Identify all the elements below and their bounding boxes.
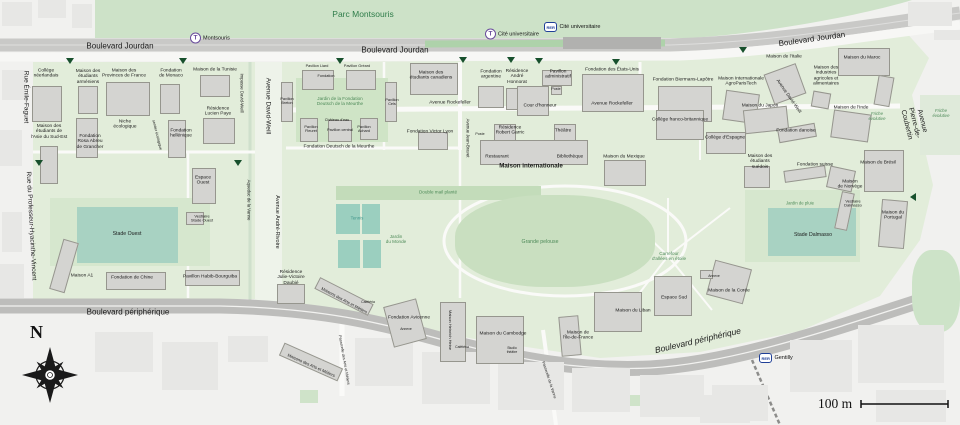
scale-bar: 100 m: [818, 396, 950, 412]
building: [830, 109, 872, 142]
station-label: Cité universitaire: [559, 24, 600, 30]
map-label: Maison des Industries agricoles et alime…: [813, 65, 839, 86]
city-block: [640, 375, 704, 417]
green-patch: [363, 240, 381, 268]
building: [656, 110, 704, 140]
building: [476, 316, 524, 364]
map-label: Espace Ouest: [195, 176, 211, 187]
map-label: Avenue André-Rivoire: [274, 195, 280, 248]
entrance-marker-icon: [234, 160, 242, 166]
city-block: [38, 0, 66, 18]
city-block: [0, 130, 22, 166]
entrance-marker-icon: [35, 160, 43, 166]
map-label: Avenue Jean-Bravet: [465, 119, 470, 158]
city-block: [0, 264, 24, 298]
map-label: Collège franco-britannique: [652, 117, 708, 122]
map-label: Fondation argentine: [480, 70, 501, 81]
map-label: Maison du Liban: [615, 308, 650, 313]
map-label: Collège d'Espagne: [705, 135, 745, 140]
map-label: Avenue David-Weill: [264, 78, 271, 134]
station-label: Cité universitaire: [498, 31, 539, 37]
green-patch: [912, 250, 960, 332]
building: [878, 199, 908, 249]
entrance-marker-icon: [612, 59, 620, 65]
green-patch: [362, 204, 380, 234]
map-label: Maison des étudiants canadiens: [410, 71, 453, 82]
map-label: Fondation Deutsch de la Meurthe: [304, 144, 375, 149]
compass-north-label: N: [30, 322, 43, 343]
city-block: [700, 395, 750, 423]
map-label: Annexe: [400, 328, 412, 332]
city-block: [498, 362, 564, 410]
building: [480, 140, 588, 165]
building: [864, 150, 904, 192]
entrance-marker-icon: [66, 58, 74, 64]
map-label: Stade Dalmasso: [794, 233, 832, 239]
map-label: Cafétéria: [455, 346, 469, 350]
map-label: Fondation hellénique: [170, 129, 192, 140]
map-label: Aqueduc de la Vanne: [246, 180, 251, 221]
city-block: [572, 368, 630, 412]
map-label: Poste: [551, 87, 560, 91]
entrance-marker-icon: [535, 58, 543, 64]
map-label: Boulevard périphérique: [87, 309, 170, 318]
map-label: Pavillon administratif: [545, 70, 571, 81]
scale-bar-line: [860, 398, 950, 410]
building: [106, 82, 150, 116]
map-label: Collège néerlandais: [34, 69, 59, 80]
map-label: Stade Ouest: [113, 232, 142, 238]
map-label: Fondation Biermans-Lapôtre: [653, 77, 714, 82]
tram-station: TCité universitaire: [485, 29, 539, 40]
building: [160, 84, 180, 114]
map-label: Maison de Norvège: [838, 180, 863, 191]
map-label: Maison du Maroc: [844, 55, 881, 60]
scale-label: 100 m: [818, 396, 852, 412]
city-block: [858, 325, 944, 383]
map-label: Maison Heinrich Heine: [448, 310, 452, 350]
building: [203, 118, 235, 144]
map-label: Friche évolutive: [869, 112, 886, 122]
map-label: Maison du Brésil: [860, 160, 895, 165]
compass-rose-icon: [22, 347, 78, 408]
tram-logo-icon: T: [190, 33, 201, 44]
city-block: [2, 2, 32, 26]
map-label: Avenue Rockefeller: [429, 100, 471, 105]
building: [346, 70, 376, 90]
building: [277, 284, 305, 304]
map-label: Bibliothèque: [557, 154, 583, 159]
building: [517, 86, 549, 116]
map-label: Fondation danoise: [776, 128, 815, 133]
building: [811, 91, 832, 110]
map-label: Boulevard Jourdan: [86, 43, 153, 52]
building: [78, 86, 98, 114]
map-label: Pavillon Achard: [357, 125, 370, 134]
map-label: Pavillon Habib-Bourguiba: [183, 274, 237, 279]
map-label: Fondation suisse: [797, 162, 833, 167]
map-label: Résidence Julie-Victoire Daubié: [277, 270, 304, 286]
map-label: Maison de l'Île-de-France: [563, 331, 594, 342]
map-label: Boulevard Jourdan: [361, 47, 428, 56]
entrance-marker-icon: [739, 47, 747, 53]
map-label: Jardin du Monde: [386, 234, 406, 244]
building: [478, 86, 504, 108]
map-label: Rue Émile-Faguet: [22, 71, 29, 123]
map-label: Maison des étudiants suédois: [748, 154, 773, 170]
entrance-marker-icon: [910, 193, 916, 201]
city-block: [162, 342, 218, 390]
map-label: Vestiaire Stade Ouest: [191, 215, 213, 224]
map-label: Restaurant: [485, 154, 508, 159]
map-label: Maison du Mexique: [603, 154, 645, 159]
rer-logo-icon: RER: [544, 22, 557, 32]
map-label: Résidence Robert Garric: [496, 126, 525, 137]
map-label: Cour d'honneur: [524, 103, 557, 108]
green-patch: [338, 240, 360, 268]
building: [32, 86, 62, 122]
rer-station: RERGentilly: [759, 353, 793, 363]
map-label: Maison de l'Italie: [766, 54, 802, 59]
map-label: Vestiaire Dalmasso: [844, 200, 862, 209]
map-label: Cafétéria: [361, 301, 375, 305]
map-label: Pavillon Breton: [280, 97, 293, 106]
map-label: Jardin de pluie: [786, 202, 814, 207]
station-label: Gentilly: [774, 355, 792, 361]
rer-station: RERCité universitaire: [544, 22, 600, 32]
map-label: Pavillon Cels: [385, 98, 398, 107]
map-label: Impasse David-Weill: [239, 73, 244, 112]
map-label: Résidence André Honnorat: [506, 69, 529, 85]
map-label: Maison du Portugal: [882, 211, 904, 222]
map-label: Fondation de Chine: [111, 275, 153, 280]
map-label: Maison du Cambodge: [480, 331, 527, 336]
rer-logo-icon: RER: [759, 353, 772, 363]
map-label: Friche évolutive: [933, 109, 950, 119]
city-block: [790, 340, 852, 392]
map-label: Parc Montsouris: [332, 10, 393, 20]
campus-map: Parc MontsourisBoulevard JourdanBoulevar…: [0, 0, 960, 425]
map-label: Pavillon Liard: [306, 64, 329, 68]
entrance-marker-icon: [179, 58, 187, 64]
tram-logo-icon: T: [485, 29, 496, 40]
map-label: Fondation de Monaco: [159, 69, 183, 80]
map-label: Fondation des États-Unis: [585, 67, 639, 72]
map-label: Grande pelouse: [522, 240, 559, 246]
map-label: Fondation: [318, 74, 335, 78]
city-block: [908, 2, 952, 26]
map-label: Carrefour d'allées en étoile: [652, 251, 686, 261]
tram-station: TMontsouris: [190, 33, 230, 44]
map-label: Poste: [475, 132, 484, 136]
city-block: [228, 336, 268, 362]
map-label: Fondation Avicenne: [388, 315, 430, 320]
map-label: Maison de la Tunisie: [193, 67, 237, 72]
map-label: Fondation Victor Lyon: [407, 129, 453, 134]
city-block: [2, 212, 22, 252]
building: [418, 132, 448, 150]
map-label: Studio théâtre: [507, 347, 518, 355]
station-label: Montsouris: [203, 35, 230, 41]
map-label: Pavillon Gréard: [344, 64, 370, 68]
city-block: [355, 338, 413, 386]
city-block: [72, 4, 92, 28]
entrance-marker-icon: [459, 57, 467, 63]
entrance-marker-icon: [336, 58, 344, 64]
map-label: Pavillon Fleuret: [304, 125, 317, 134]
map-label: Niche écologique: [113, 120, 136, 131]
building: [604, 160, 646, 186]
map-label: Maison Internationale AgroParisTech: [718, 77, 764, 88]
green-patch: [300, 390, 318, 403]
map-label: Résidence Lucien Paye: [205, 107, 231, 118]
map-label: Pavillon central: [327, 128, 353, 132]
map-label: Maison A1: [71, 273, 93, 278]
map-label: Théâtre: [555, 128, 572, 133]
city-block: [934, 30, 960, 40]
map-label: Espace Sud: [661, 295, 687, 300]
map-label: Maison du Japon: [742, 103, 779, 108]
map-label: Château d'eau: [325, 118, 350, 122]
map-label: Annexe: [708, 275, 720, 279]
map-label: Maison des étudiants arméniens: [76, 69, 101, 85]
map-label: Avenue Rockefeller: [591, 101, 633, 106]
map-label: Maison des étudiants de l'Asie du Sud-Es…: [31, 124, 67, 140]
map-label: Fondation Rosa Abreu de Grancher: [77, 134, 104, 150]
map-label: Double mail planté: [419, 189, 457, 194]
building: [838, 48, 890, 76]
map-label: Maison des Provinces de France: [102, 69, 146, 80]
building: [200, 75, 230, 97]
map-label: Tennis: [351, 217, 364, 222]
map-label: Jardin de la Fondation Deutsch de la Meu…: [317, 96, 363, 106]
city-block: [95, 332, 153, 372]
map-label: Maison internationale: [499, 164, 563, 171]
entrance-marker-icon: [507, 57, 515, 63]
map-label: Maison de la Corée: [708, 288, 750, 293]
map-label: Maison de l'Inde: [834, 105, 869, 110]
